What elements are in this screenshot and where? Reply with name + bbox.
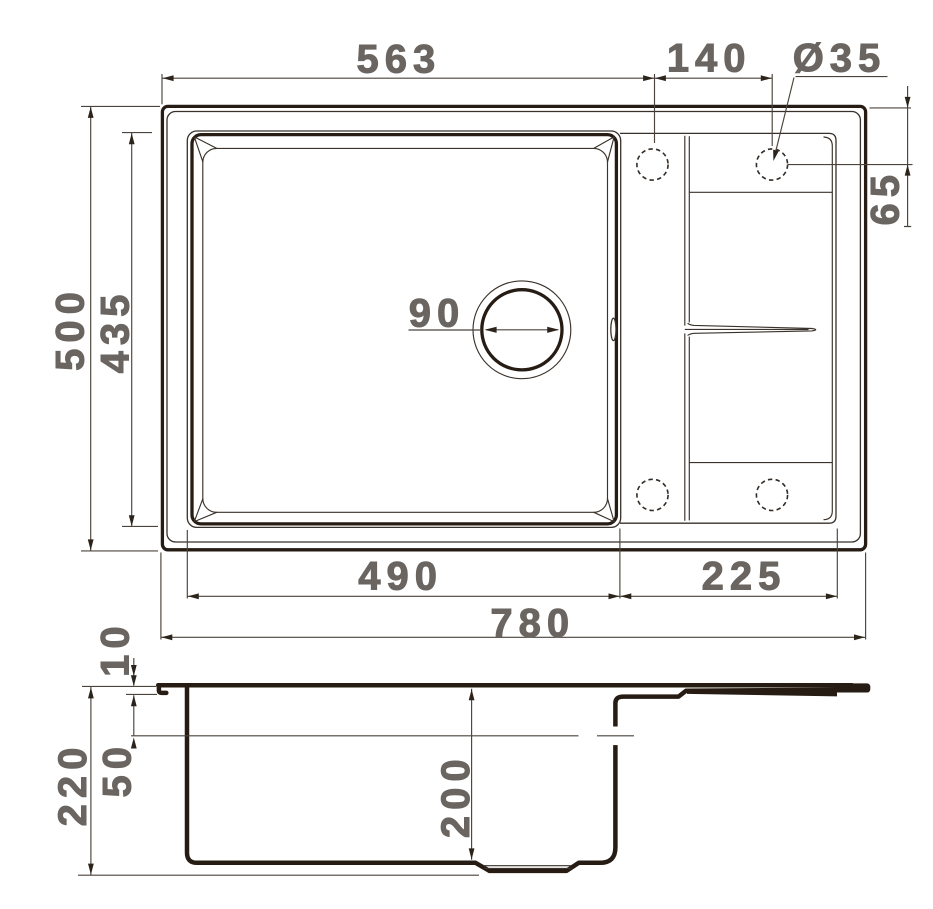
svg-text:500: 500	[48, 286, 92, 371]
svg-text:563: 563	[357, 37, 442, 81]
svg-text:65: 65	[863, 169, 907, 226]
svg-text:225: 225	[702, 554, 787, 598]
svg-text:10: 10	[93, 620, 137, 677]
svg-text:200: 200	[434, 753, 478, 838]
svg-text:Ø35: Ø35	[793, 37, 887, 81]
svg-text:220: 220	[51, 742, 95, 827]
svg-text:490: 490	[358, 554, 443, 598]
svg-text:780: 780	[490, 601, 575, 645]
svg-text:435: 435	[94, 289, 138, 374]
svg-text:50: 50	[96, 741, 140, 798]
svg-text:90: 90	[409, 292, 466, 336]
svg-text:140: 140	[667, 37, 752, 81]
